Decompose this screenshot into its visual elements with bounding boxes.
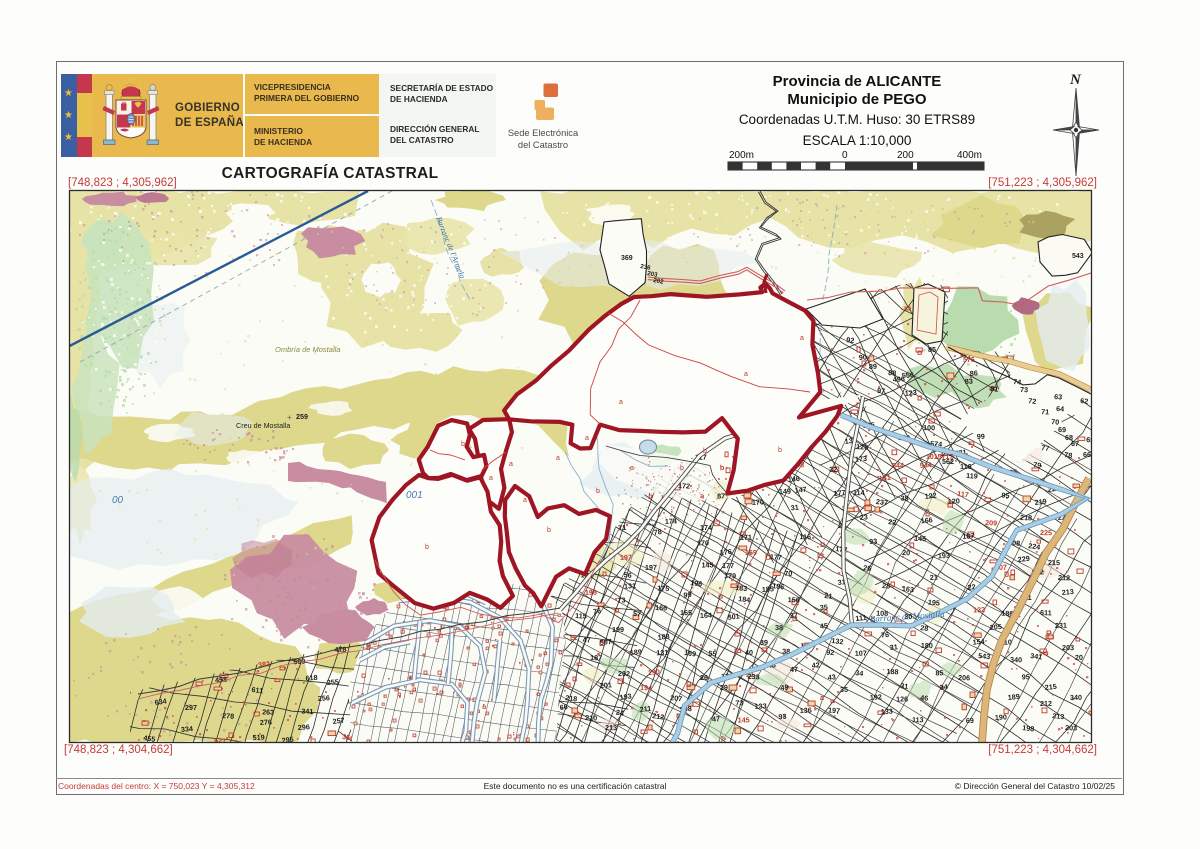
svg-text:198: 198	[1022, 723, 1035, 733]
svg-text:201: 201	[600, 680, 613, 690]
svg-text:21: 21	[930, 572, 939, 582]
svg-text:203: 203	[1062, 643, 1074, 652]
svg-text:169: 169	[684, 648, 697, 659]
svg-text:32: 32	[829, 465, 837, 474]
svg-text:176: 176	[719, 547, 732, 557]
svg-text:93: 93	[869, 537, 877, 546]
svg-text:116: 116	[799, 532, 811, 541]
svg-text:229: 229	[1017, 554, 1030, 564]
svg-text:212: 212	[1040, 699, 1052, 708]
svg-text:501: 501	[727, 611, 740, 622]
svg-text:543: 543	[1072, 253, 1084, 260]
svg-text:38: 38	[900, 494, 908, 503]
svg-text:83: 83	[965, 376, 974, 386]
svg-text:219: 219	[1034, 497, 1047, 507]
svg-text:174: 174	[665, 516, 677, 526]
svg-text:197: 197	[645, 563, 657, 572]
svg-text:187: 187	[962, 531, 974, 541]
svg-text:129: 129	[856, 442, 868, 452]
svg-text:634: 634	[154, 696, 167, 707]
svg-text:190: 190	[648, 667, 661, 677]
svg-text:70: 70	[784, 569, 792, 578]
svg-text:297: 297	[185, 703, 197, 712]
svg-text:47: 47	[790, 665, 798, 674]
svg-text:b: b	[778, 447, 782, 454]
svg-text:b: b	[703, 448, 707, 455]
svg-text:20: 20	[1075, 653, 1083, 662]
svg-text:73: 73	[1020, 385, 1028, 394]
svg-text:a: a	[585, 435, 589, 442]
svg-text:a: a	[556, 455, 560, 462]
svg-text:64: 64	[1056, 404, 1064, 413]
svg-text:296: 296	[298, 722, 311, 732]
svg-text:97: 97	[877, 386, 885, 395]
svg-text:212: 212	[652, 711, 665, 722]
svg-text:544: 544	[892, 461, 904, 470]
svg-text:170: 170	[697, 538, 709, 547]
svg-text:263: 263	[262, 707, 274, 716]
svg-text:119: 119	[966, 471, 978, 481]
svg-text:213: 213	[605, 723, 617, 732]
svg-text:85: 85	[928, 345, 936, 354]
svg-text:73: 73	[735, 698, 743, 707]
svg-text:99: 99	[977, 432, 985, 441]
svg-text:26: 26	[700, 673, 708, 682]
svg-text:131: 131	[878, 473, 891, 483]
svg-text:31: 31	[889, 642, 898, 652]
svg-text:556: 556	[902, 370, 915, 380]
svg-text:a: a	[630, 465, 634, 472]
svg-text:b: b	[596, 488, 600, 495]
svg-text:+: +	[287, 413, 292, 422]
svg-text:193: 193	[938, 551, 950, 561]
svg-text:90: 90	[859, 352, 868, 362]
svg-text:34: 34	[939, 682, 948, 692]
svg-text:369: 369	[621, 255, 633, 262]
svg-text:202: 202	[618, 669, 630, 678]
svg-text:147: 147	[794, 485, 807, 495]
svg-text:197: 197	[620, 553, 632, 562]
svg-text:31: 31	[900, 681, 909, 691]
svg-text:543: 543	[978, 651, 991, 661]
svg-text:173: 173	[855, 454, 868, 464]
svg-text:576: 576	[963, 357, 975, 364]
svg-text:179: 179	[724, 571, 736, 580]
svg-text:81: 81	[990, 384, 999, 394]
svg-text:145: 145	[701, 560, 713, 569]
svg-text:131: 131	[656, 648, 668, 657]
svg-text:99: 99	[683, 590, 692, 600]
svg-text:132: 132	[973, 605, 985, 615]
svg-text:93: 93	[778, 712, 787, 722]
svg-text:a: a	[509, 461, 513, 468]
svg-text:145: 145	[914, 534, 926, 543]
svg-text:42: 42	[811, 660, 820, 670]
svg-text:133: 133	[754, 701, 766, 710]
svg-text:519: 519	[253, 733, 265, 742]
svg-text:92: 92	[826, 648, 835, 658]
svg-text:206: 206	[958, 673, 970, 682]
svg-text:a: a	[800, 335, 804, 342]
svg-text:154: 154	[972, 637, 985, 647]
svg-text:Ombría de Mostalla: Ombría de Mostalla	[275, 345, 340, 354]
svg-text:b: b	[461, 441, 465, 448]
svg-text:166: 166	[655, 603, 667, 613]
svg-text:209: 209	[985, 518, 997, 528]
svg-text:107: 107	[855, 648, 867, 657]
svg-text:133: 133	[881, 707, 893, 716]
svg-text:72: 72	[1028, 396, 1037, 406]
svg-text:197: 197	[828, 705, 841, 715]
svg-text:66: 66	[1083, 450, 1091, 459]
svg-text:39: 39	[760, 638, 768, 647]
svg-text:166: 166	[920, 515, 933, 525]
svg-text:40: 40	[745, 648, 753, 657]
svg-text:611: 611	[251, 685, 264, 695]
svg-text:188: 188	[886, 667, 898, 677]
svg-text:278: 278	[222, 711, 235, 721]
svg-text:199: 199	[612, 625, 624, 634]
svg-text:215: 215	[1048, 558, 1060, 567]
svg-text:136: 136	[800, 705, 812, 715]
svg-text:65: 65	[1086, 435, 1095, 445]
svg-text:67: 67	[1071, 439, 1079, 448]
svg-text:183: 183	[735, 583, 748, 593]
svg-text:24: 24	[615, 708, 624, 718]
svg-text:237: 237	[875, 497, 888, 507]
svg-text:28: 28	[882, 581, 891, 591]
svg-text:255: 255	[327, 677, 340, 687]
svg-text:63: 63	[1054, 392, 1063, 402]
svg-text:203: 203	[1065, 723, 1077, 733]
svg-text:1015717: 1015717	[926, 454, 953, 461]
svg-text:163: 163	[901, 584, 914, 594]
svg-text:189: 189	[630, 647, 643, 657]
svg-text:190: 190	[995, 712, 1007, 722]
svg-text:341: 341	[301, 706, 313, 716]
svg-text:56: 56	[623, 570, 632, 580]
svg-text:189: 189	[1007, 692, 1020, 702]
svg-text:295: 295	[281, 735, 294, 745]
svg-text:126: 126	[896, 694, 908, 703]
svg-text:85: 85	[935, 668, 943, 677]
svg-text:215: 215	[1044, 682, 1057, 692]
svg-text:193: 193	[619, 691, 632, 702]
svg-text:78: 78	[1064, 450, 1073, 460]
svg-text:92: 92	[846, 335, 855, 345]
svg-text:341: 341	[1030, 651, 1043, 661]
svg-text:116: 116	[960, 462, 972, 471]
svg-text:23: 23	[859, 512, 868, 522]
svg-text:100: 100	[923, 423, 935, 432]
svg-text:71: 71	[618, 523, 627, 533]
svg-text:26: 26	[863, 563, 872, 573]
svg-text:213: 213	[1061, 587, 1074, 597]
svg-text:20: 20	[902, 548, 910, 557]
svg-text:49: 49	[780, 683, 789, 693]
svg-text:b: b	[547, 527, 551, 534]
svg-text:180: 180	[921, 641, 933, 650]
svg-text:132: 132	[831, 636, 844, 646]
svg-text:87: 87	[717, 491, 725, 500]
svg-text:57: 57	[633, 609, 642, 619]
svg-text:170: 170	[752, 497, 764, 507]
svg-text:192: 192	[870, 692, 883, 702]
svg-text:120: 120	[948, 496, 961, 506]
svg-text:276: 276	[260, 717, 272, 727]
svg-text:a: a	[489, 475, 493, 482]
svg-text:111: 111	[855, 613, 867, 623]
svg-text:001: 001	[406, 490, 423, 501]
svg-text:171: 171	[740, 533, 752, 542]
svg-text:76: 76	[593, 606, 602, 616]
svg-text:198: 198	[585, 588, 597, 597]
svg-text:95: 95	[1022, 672, 1030, 681]
svg-text:76: 76	[881, 630, 890, 640]
svg-text:196: 196	[690, 578, 703, 588]
svg-text:35: 35	[820, 602, 829, 612]
svg-text:b: b	[680, 465, 684, 472]
svg-text:79: 79	[1033, 460, 1042, 470]
svg-text:507: 507	[599, 637, 612, 647]
svg-text:123: 123	[904, 388, 917, 398]
svg-text:122: 122	[924, 491, 937, 501]
svg-text:156: 156	[788, 595, 800, 604]
svg-text:b: b	[425, 544, 429, 551]
svg-text:177: 177	[722, 561, 734, 570]
svg-text:174: 174	[700, 523, 712, 532]
svg-text:177: 177	[833, 488, 846, 498]
svg-text:21: 21	[824, 591, 833, 601]
svg-text:186: 186	[772, 581, 785, 591]
svg-text:78: 78	[653, 527, 662, 537]
svg-text:334: 334	[181, 724, 194, 734]
svg-text:175: 175	[657, 584, 669, 594]
svg-text:31: 31	[790, 503, 799, 513]
svg-text:218: 218	[1020, 513, 1032, 522]
svg-text:47: 47	[712, 714, 721, 724]
svg-text:145: 145	[738, 716, 750, 725]
svg-text:66: 66	[559, 702, 568, 712]
svg-text:35: 35	[840, 685, 848, 694]
svg-text:38: 38	[775, 623, 783, 632]
svg-text:28: 28	[920, 623, 929, 633]
svg-text:169: 169	[745, 548, 757, 557]
svg-text:340: 340	[1010, 655, 1022, 664]
svg-text:46: 46	[920, 693, 929, 703]
svg-text:37: 37	[790, 611, 798, 620]
svg-text:256: 256	[318, 693, 331, 703]
svg-text:544: 544	[920, 460, 933, 470]
svg-text:a: a	[523, 497, 527, 504]
svg-text:211: 211	[639, 704, 652, 714]
svg-text:47: 47	[583, 635, 591, 644]
svg-text:224: 224	[1028, 541, 1041, 552]
svg-text:184: 184	[738, 594, 751, 604]
svg-text:43: 43	[827, 672, 836, 682]
svg-text:194: 194	[640, 683, 652, 692]
svg-text:207: 207	[670, 693, 683, 703]
svg-text:212: 212	[1058, 573, 1070, 582]
svg-text:210: 210	[585, 713, 597, 723]
svg-text:113: 113	[912, 715, 924, 724]
svg-text:618: 618	[305, 673, 318, 683]
svg-text:114: 114	[853, 488, 865, 497]
svg-text:86: 86	[969, 368, 978, 378]
svg-text:34: 34	[855, 668, 864, 678]
svg-text:213: 213	[1052, 711, 1065, 721]
svg-text:55: 55	[708, 649, 717, 659]
svg-text:188: 188	[657, 632, 670, 642]
svg-text:22: 22	[888, 517, 897, 527]
svg-text:257: 257	[332, 716, 345, 726]
svg-text:71: 71	[1041, 407, 1050, 417]
svg-text:225: 225	[1040, 528, 1052, 537]
svg-text:115: 115	[575, 611, 587, 621]
svg-text:69: 69	[966, 716, 975, 726]
svg-text:a: a	[744, 371, 748, 378]
svg-text:165: 165	[680, 608, 692, 617]
svg-text:195: 195	[928, 598, 941, 608]
svg-text:164: 164	[700, 611, 712, 620]
svg-text:29: 29	[720, 683, 728, 692]
svg-text:Creu de Mostalla: Creu de Mostalla	[236, 421, 290, 430]
svg-text:131: 131	[624, 581, 636, 591]
svg-text:521: 521	[214, 736, 227, 746]
svg-text:231: 231	[1055, 621, 1067, 630]
svg-text:73: 73	[617, 595, 626, 605]
svg-text:00: 00	[112, 495, 124, 506]
svg-text:177: 177	[770, 552, 783, 562]
svg-text:95: 95	[1001, 490, 1010, 500]
svg-text:77: 77	[1041, 443, 1050, 453]
svg-text:205: 205	[989, 622, 1002, 632]
svg-text:45: 45	[820, 621, 829, 631]
svg-text:187: 187	[590, 653, 602, 662]
svg-text:a: a	[619, 399, 623, 406]
svg-text:259: 259	[296, 412, 308, 421]
svg-text:89: 89	[869, 362, 877, 371]
svg-text:62: 62	[1080, 396, 1089, 406]
svg-text:611: 611	[1040, 608, 1052, 617]
svg-text:340: 340	[1070, 693, 1082, 702]
svg-text:149: 149	[779, 487, 791, 496]
